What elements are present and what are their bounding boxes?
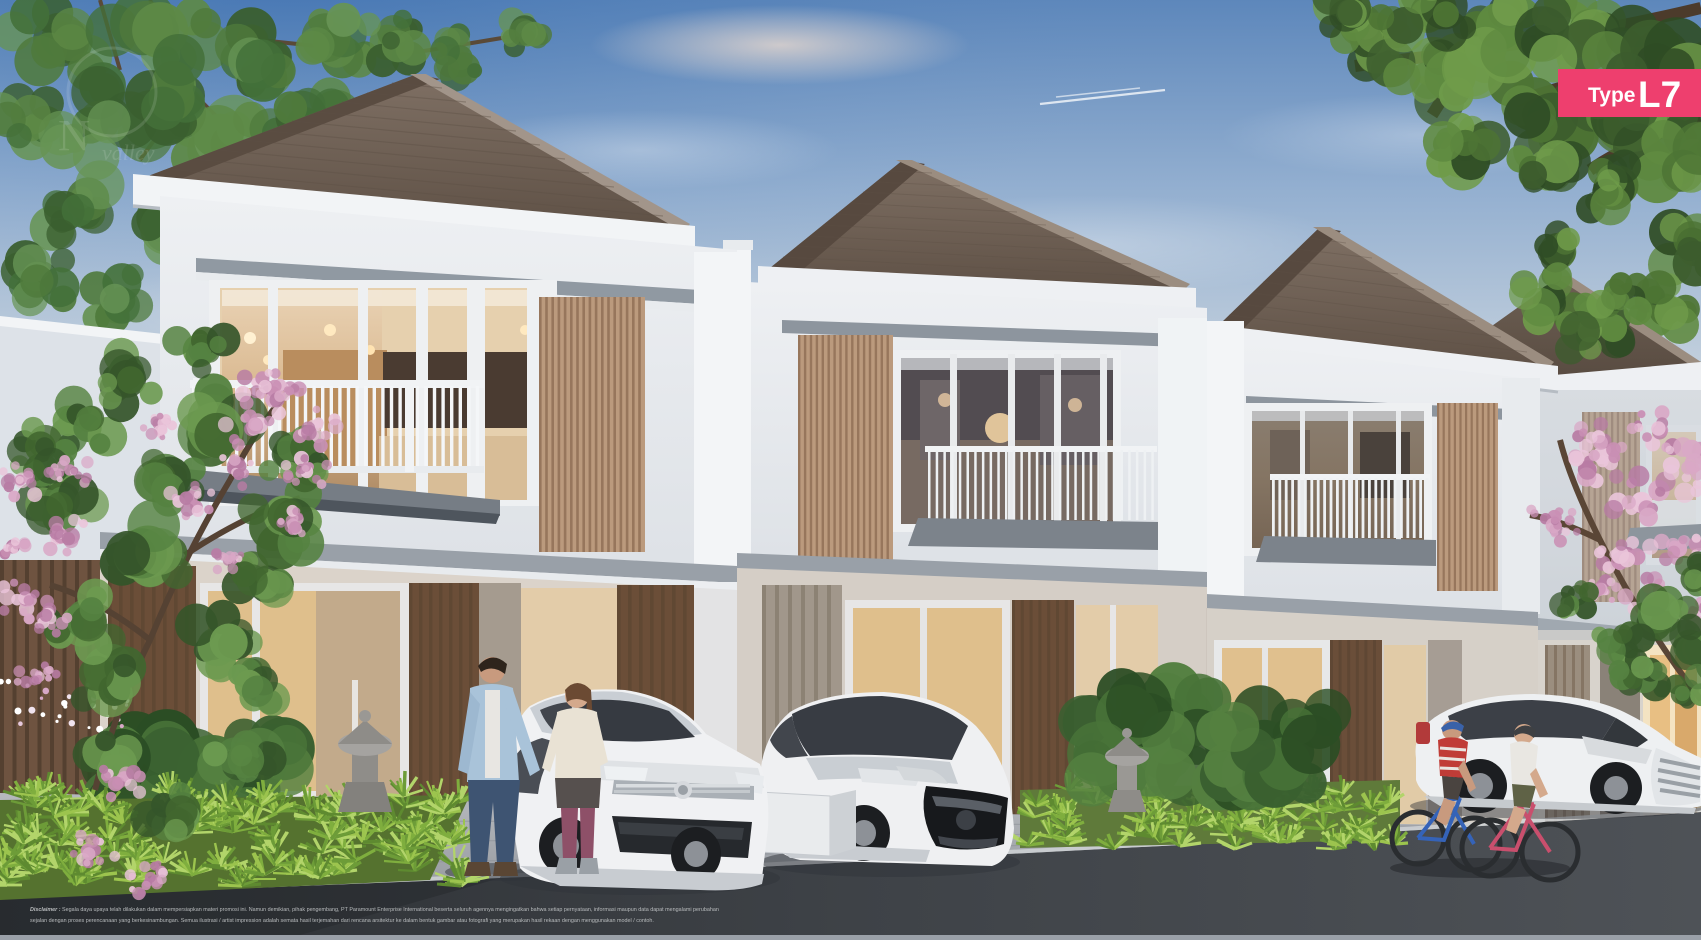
svg-text:Type: Type — [1588, 84, 1635, 107]
svg-text:N: N — [58, 111, 90, 160]
svg-text:L7: L7 — [1638, 74, 1681, 115]
svg-text:valley: valley — [102, 140, 155, 165]
svg-text:sejalan dengan proses perencan: sejalan dengan proses perencanaan yang b… — [30, 918, 654, 924]
svg-text:Disclaimer : Segala daya upaya: Disclaimer : Segala daya upaya telah dil… — [30, 907, 719, 913]
